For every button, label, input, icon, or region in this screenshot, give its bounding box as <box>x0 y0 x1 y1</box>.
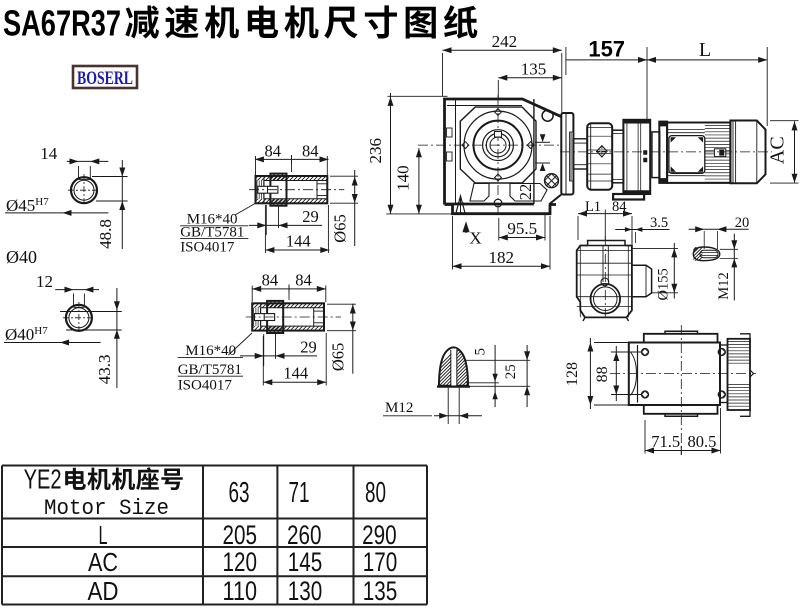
svg-text:AD: AD <box>88 578 119 606</box>
svg-text:Ø65: Ø65 <box>330 214 349 242</box>
svg-text:Ø40H7: Ø40H7 <box>5 325 48 344</box>
svg-text:M12: M12 <box>716 272 732 299</box>
svg-text:71.5: 71.5 <box>651 432 680 451</box>
svg-text:SA67R37: SA67R37 <box>3 3 121 44</box>
svg-text:182: 182 <box>488 248 514 267</box>
svg-text:135: 135 <box>363 576 398 606</box>
svg-text:ISO4017: ISO4017 <box>178 377 233 393</box>
svg-text:5: 5 <box>473 348 489 356</box>
svg-text:88: 88 <box>594 366 611 382</box>
svg-text:84: 84 <box>262 271 279 290</box>
svg-text:L: L <box>699 39 711 61</box>
svg-text:29: 29 <box>300 338 317 357</box>
svg-text:29: 29 <box>302 207 319 226</box>
svg-text:Ø40: Ø40 <box>6 247 37 267</box>
svg-text:242: 242 <box>492 32 518 51</box>
svg-text:145: 145 <box>288 547 323 577</box>
svg-text:130: 130 <box>288 576 323 606</box>
svg-text:110: 110 <box>223 576 258 606</box>
svg-text:L1: L1 <box>585 199 601 215</box>
svg-text:3.5: 3.5 <box>650 215 668 231</box>
svg-text:YE2: YE2 <box>24 464 62 495</box>
svg-text:95.5: 95.5 <box>507 219 537 238</box>
svg-text:84: 84 <box>302 142 319 161</box>
svg-text:L: L <box>99 520 108 550</box>
svg-text:Motor Size: Motor Size <box>44 496 169 521</box>
svg-text:84: 84 <box>612 199 627 215</box>
svg-text:205: 205 <box>223 520 258 550</box>
svg-text:43.3: 43.3 <box>95 355 114 385</box>
svg-text:120: 120 <box>223 547 258 577</box>
svg-text:144: 144 <box>283 364 308 383</box>
svg-text:71: 71 <box>289 477 310 509</box>
svg-text:M16*40: M16*40 <box>185 343 236 359</box>
svg-text:20: 20 <box>735 215 750 231</box>
svg-text:63: 63 <box>229 477 250 509</box>
svg-text:Ø155: Ø155 <box>655 268 671 300</box>
svg-text:84: 84 <box>295 271 312 290</box>
svg-text:140: 140 <box>394 165 413 191</box>
svg-text:170: 170 <box>363 547 398 577</box>
svg-text:84: 84 <box>265 142 282 161</box>
svg-text:25: 25 <box>503 364 519 379</box>
svg-text:128: 128 <box>564 362 581 386</box>
svg-text:260: 260 <box>287 520 322 550</box>
svg-text:48.8: 48.8 <box>96 219 115 249</box>
svg-text:Ø65: Ø65 <box>329 343 348 371</box>
svg-text:80.5: 80.5 <box>687 432 716 451</box>
svg-text:GB/T5781: GB/T5781 <box>178 362 242 378</box>
svg-text:X: X <box>469 229 481 248</box>
svg-text:290: 290 <box>362 520 397 550</box>
svg-text:AC: AC <box>767 136 789 164</box>
svg-text:M12: M12 <box>385 400 413 416</box>
svg-text:14: 14 <box>40 144 58 163</box>
svg-text:ISO4017: ISO4017 <box>180 240 235 256</box>
svg-text:22: 22 <box>516 184 535 201</box>
svg-text:80: 80 <box>365 477 386 509</box>
svg-text:Ø45H7: Ø45H7 <box>6 196 49 215</box>
svg-text:12: 12 <box>36 272 53 291</box>
svg-text:BOSERL: BOSERL <box>77 68 133 89</box>
svg-text:157: 157 <box>588 37 625 62</box>
svg-text:236: 236 <box>366 138 385 164</box>
svg-text:AC: AC <box>88 549 118 577</box>
svg-text:144: 144 <box>286 232 311 251</box>
svg-text:135: 135 <box>521 60 547 79</box>
